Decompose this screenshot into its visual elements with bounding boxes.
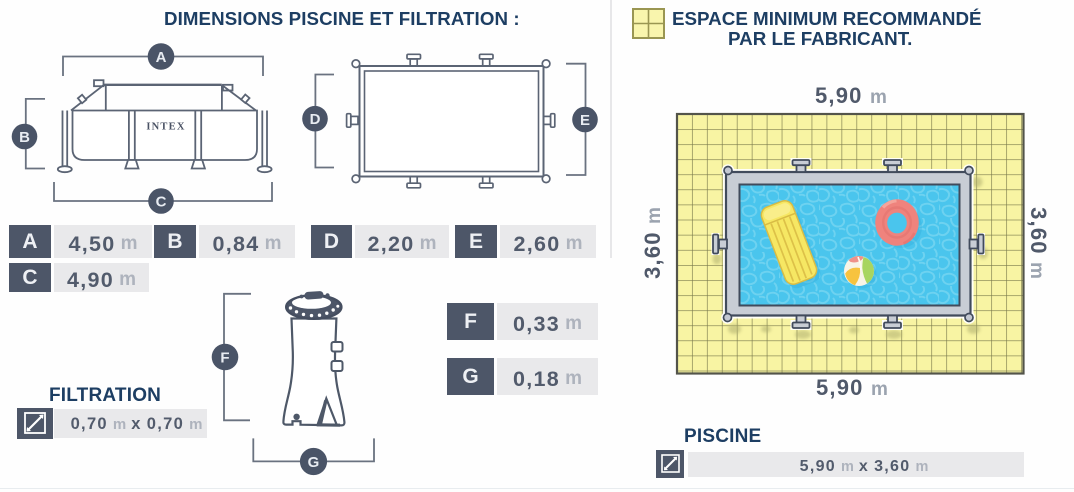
svg-text:G: G	[308, 454, 320, 471]
svg-text:INTEX: INTEX	[146, 122, 185, 133]
svg-text:D: D	[310, 111, 321, 128]
svg-text:C: C	[156, 194, 167, 211]
svg-text:B: B	[19, 129, 30, 146]
svg-text:F: F	[220, 350, 229, 367]
svg-text:E: E	[580, 112, 590, 129]
svg-text:A: A	[156, 49, 167, 66]
